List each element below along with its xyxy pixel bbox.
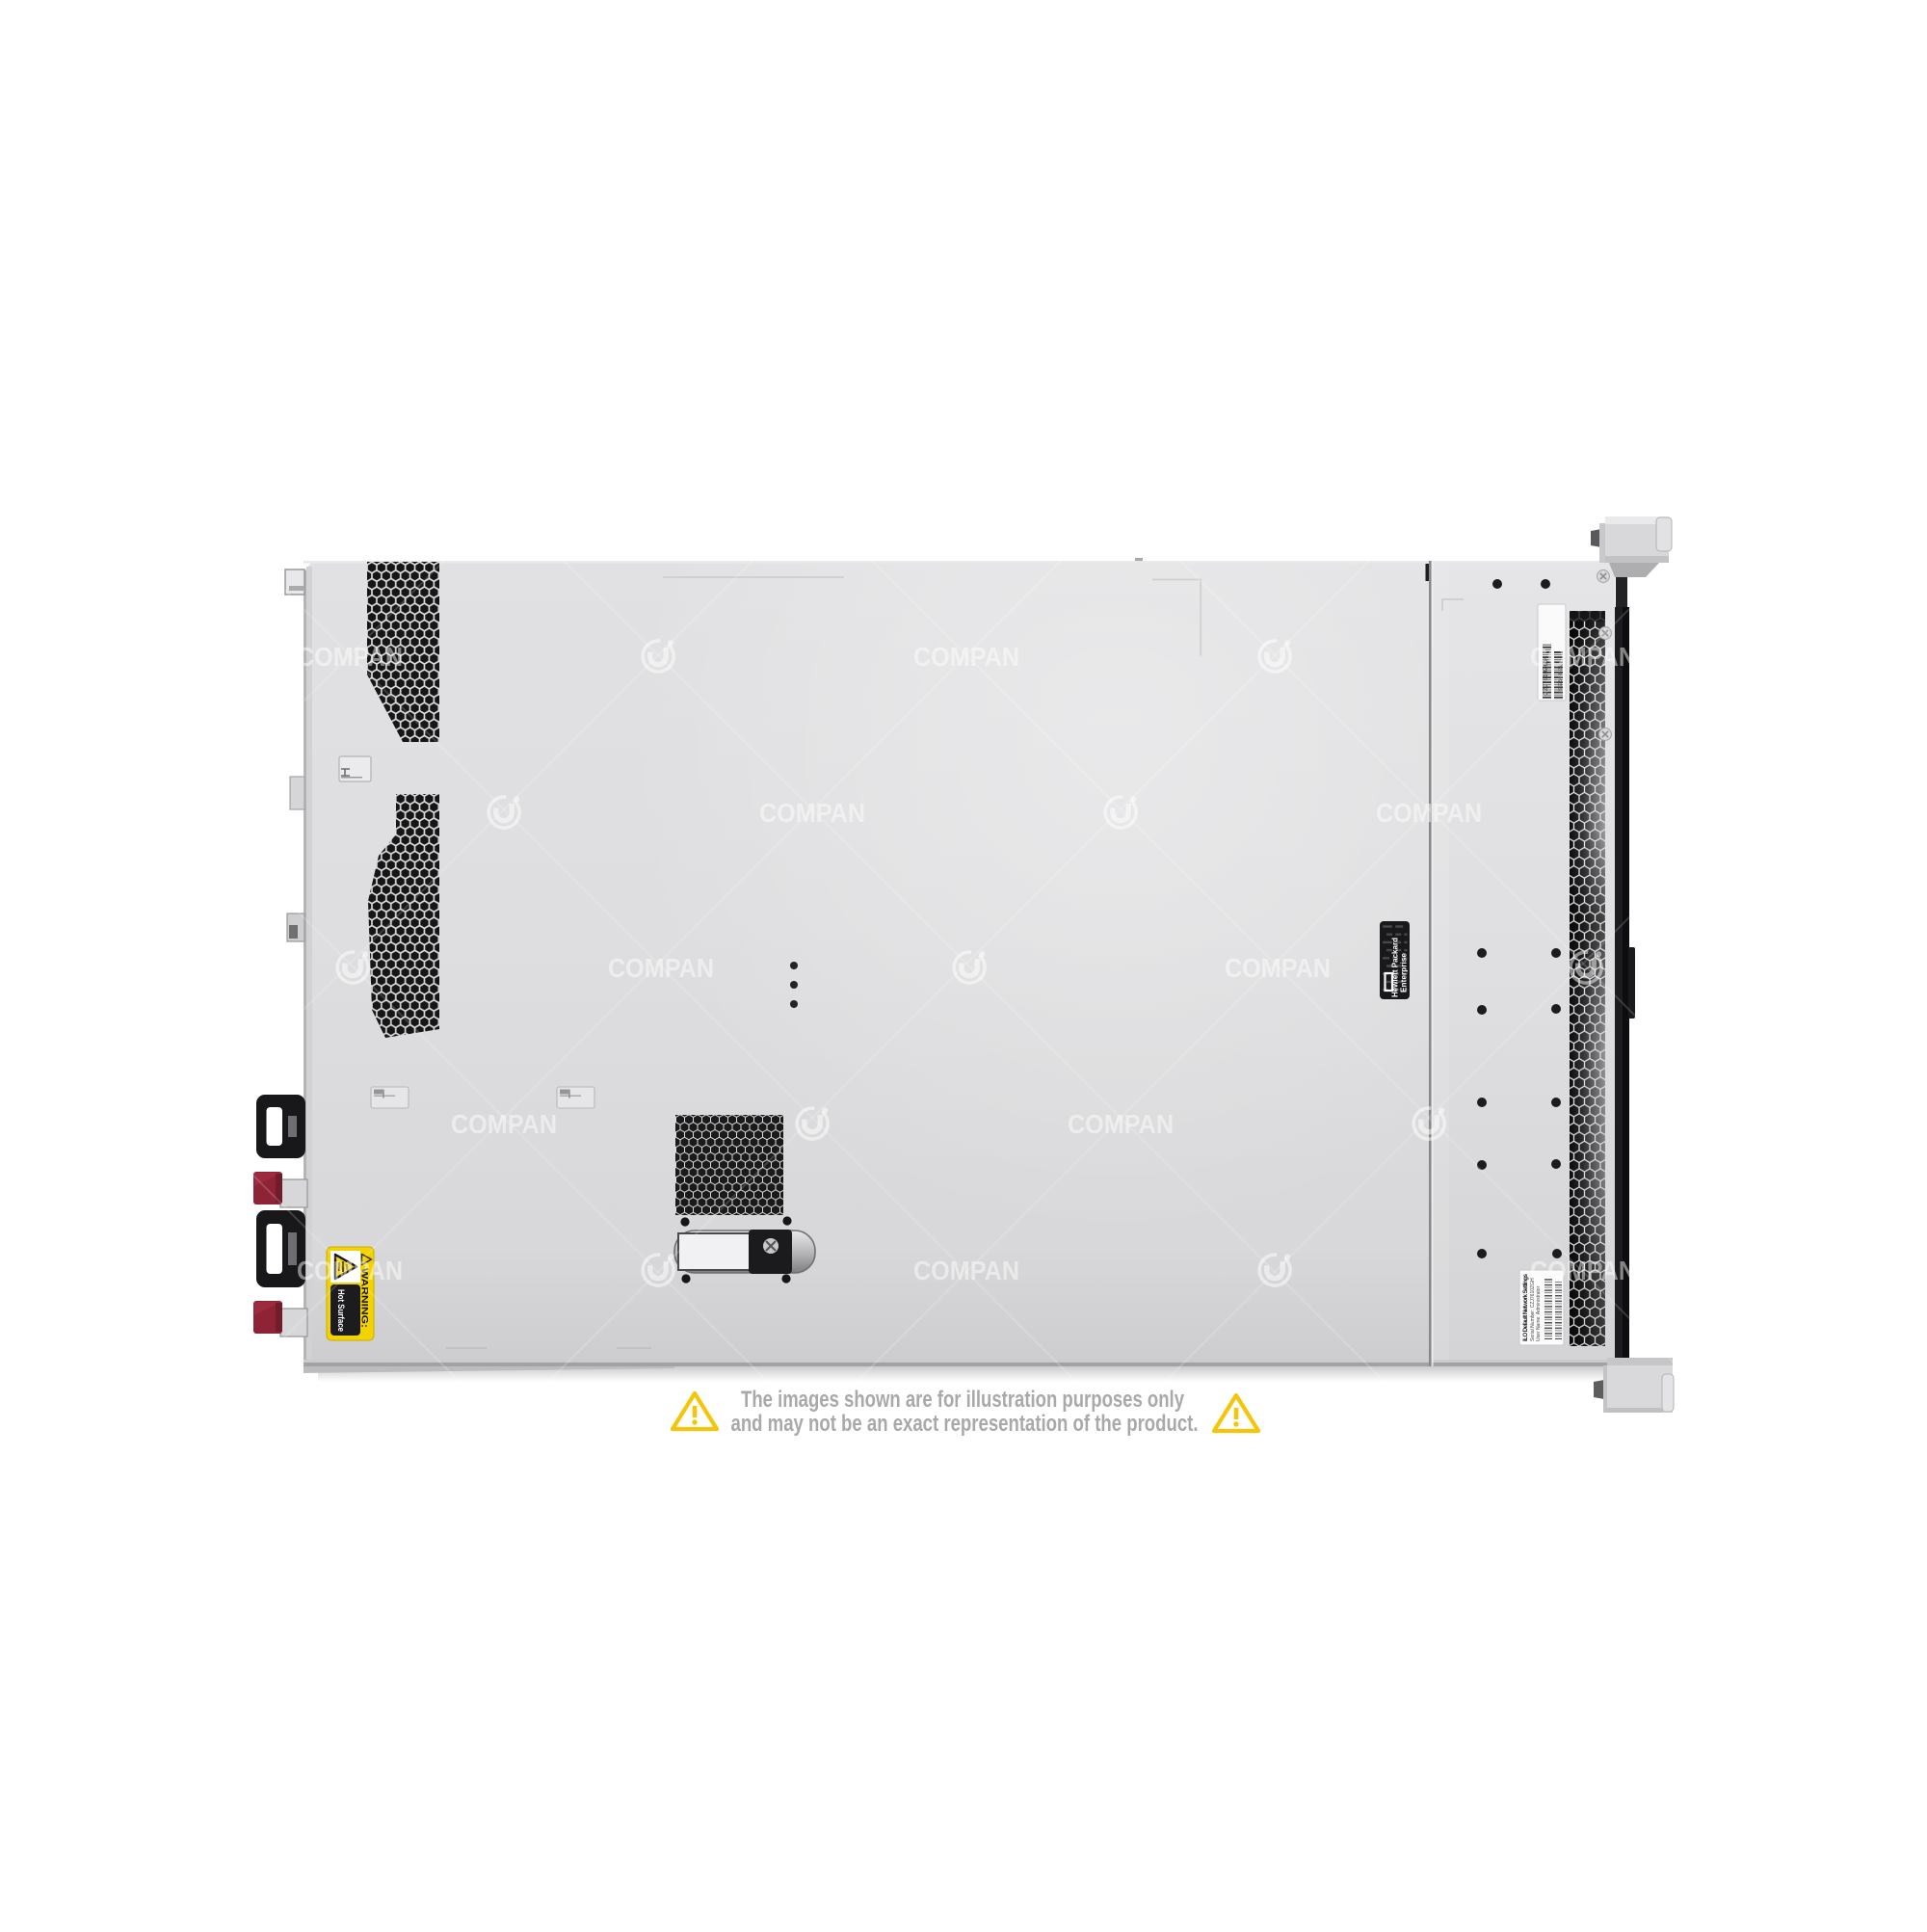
svg-text:Hewlett Packard: Hewlett Packard [1390, 938, 1400, 997]
svg-text:COMPAN: COMPAN [913, 642, 1019, 672]
svg-text:iLO Default Network Settings: iLO Default Network Settings [1522, 1274, 1529, 1341]
svg-text:COMPAN: COMPAN [1530, 642, 1636, 672]
svg-text:COMPAN: COMPAN [1376, 798, 1482, 828]
svg-text:COMPAN: COMPAN [759, 798, 865, 828]
svg-text:User Name: Administrator: User Name: Administrator [1536, 1285, 1542, 1341]
svg-text:COMPAN: COMPAN [608, 953, 714, 983]
svg-text:Enterprise: Enterprise [1400, 952, 1409, 992]
svg-text:COMPAN: COMPAN [1068, 1109, 1174, 1139]
svg-text:COMPAN: COMPAN [297, 1256, 403, 1285]
svg-text:COMPAN: COMPAN [451, 1109, 557, 1139]
svg-text:COMPAN: COMPAN [297, 642, 403, 672]
svg-text:The images shown are for illus: The images shown are for illustration pu… [741, 1387, 1185, 1413]
svg-text:COMPAN: COMPAN [913, 1256, 1019, 1285]
svg-text:COMPAN: COMPAN [1225, 953, 1331, 983]
svg-text:Hot Surface: Hot Surface [335, 1289, 346, 1332]
svg-text:and may not be an exact repres: and may not be an exact representation o… [731, 1411, 1199, 1437]
svg-text:COMPAN: COMPAN [1530, 1256, 1636, 1285]
